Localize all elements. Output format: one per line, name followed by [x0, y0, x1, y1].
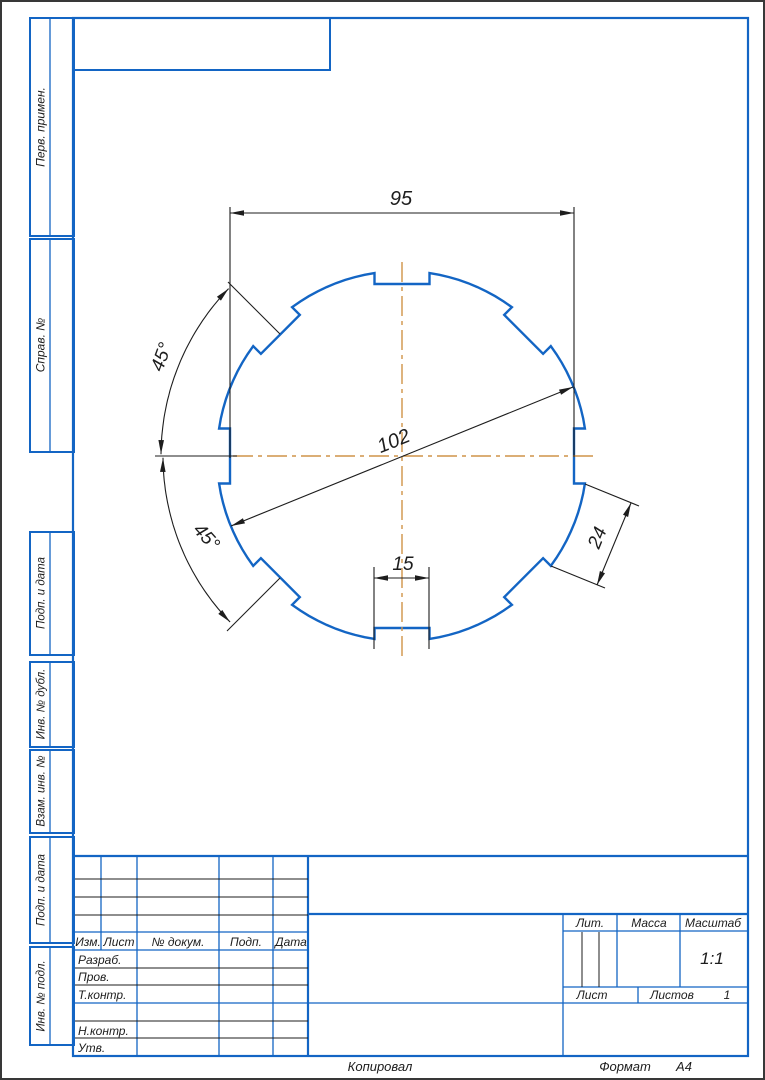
margin-label-inv-podl: Инв. № подл. [36, 960, 48, 1031]
dim-arrowhead [374, 575, 388, 581]
margin-label-perv-primen: Перв. примен. [34, 87, 48, 167]
margin-label-podp-data-2: Подп. и дата [36, 854, 48, 926]
margin-label-sprav: Справ. № [34, 318, 48, 373]
tb-col-podp: Подп. [230, 935, 262, 949]
footer-strip: Копировал Формат А4 [348, 1059, 692, 1074]
tb-masshtab: Масштаб [685, 916, 742, 930]
tb-col-doc: № докум. [152, 935, 205, 949]
margin-box-podp-data-1: Подп. и дата [30, 532, 74, 655]
margin-box-inv-podl: Инв. № подл. [30, 947, 74, 1045]
tb-row-tkontr: Т.контр. [78, 988, 126, 1002]
tb-row-razrab: Разраб. [78, 953, 121, 967]
angle-side-line-lower [227, 578, 280, 631]
tb-row-prov: Пров. [78, 970, 110, 984]
margin-box-vzam-inv: Взам. инв. № [30, 750, 74, 833]
tb-scale-value: 1:1 [700, 949, 724, 968]
dimension-labels: 95 102 45° 45° 15 24 [147, 188, 612, 575]
dim-arrowhead [231, 518, 245, 526]
margin-label-podp-data-1: Подп. и дата [36, 557, 48, 629]
extension-line-24-a [585, 484, 639, 506]
dim-diameter-label: 102 [374, 425, 413, 458]
dim-arrowhead [218, 610, 230, 622]
dim-across-flats-label: 95 [390, 188, 413, 210]
title-block: Изм. Лист № докум. Подп. Дата Разраб. Пр… [73, 856, 748, 1056]
dim-arrowhead [623, 503, 631, 517]
footer-format-value: А4 [675, 1059, 692, 1074]
drawing-frame [73, 18, 748, 1056]
top-designation-box [74, 18, 330, 70]
footer-format-label: Формат [599, 1059, 651, 1074]
tb-col-data: Дата [273, 935, 307, 949]
dim-arrowhead [559, 387, 573, 395]
dim-angle-lower-label: 45° [189, 520, 224, 556]
dim-arrowhead [560, 210, 574, 216]
margin-box-podp-data-2: Подп. и дата [30, 837, 74, 943]
tb-massa: Масса [631, 916, 667, 930]
tb-row-nkontr: Н.контр. [78, 1024, 129, 1038]
dim-tooth-width-label: 24 [584, 524, 612, 552]
dim-arrowhead [597, 571, 605, 585]
margin-box-perv-primen: Перв. примен. [30, 18, 74, 236]
tb-col-list: Лист [103, 935, 135, 949]
margin-label-vzam-inv: Взам. инв. № [36, 755, 48, 827]
tb-listov: Листов [649, 988, 694, 1002]
tb-listov-value: 1 [724, 988, 731, 1002]
dim-arrowhead [230, 210, 244, 216]
margin-box-inv-dubl: Инв. № дубл. [30, 662, 74, 747]
margin-box-sprav: Справ. № [30, 239, 74, 452]
dim-slot-width-label: 15 [392, 554, 414, 575]
drawing-sheet: Перв. примен. Справ. № Подп. и дата Инв.… [0, 0, 765, 1080]
margin-column: Перв. примен. Справ. № Подп. и дата Инв.… [30, 18, 74, 1045]
tb-col-izm: Изм. [75, 935, 101, 949]
margin-label-inv-dubl: Инв. № дубл. [36, 669, 48, 740]
dim-angle-upper-label: 45° [147, 340, 177, 375]
tb-row-utv: Утв. [77, 1041, 105, 1055]
dim-arrowhead [158, 440, 164, 454]
tb-lit: Лит. [575, 916, 604, 930]
dim-arrowhead [415, 575, 429, 581]
angle-side-line-upper [228, 282, 280, 334]
dim-arrowhead [160, 458, 166, 472]
tb-list: Лист [576, 988, 608, 1002]
footer-kopiroval: Копировал [348, 1059, 413, 1074]
